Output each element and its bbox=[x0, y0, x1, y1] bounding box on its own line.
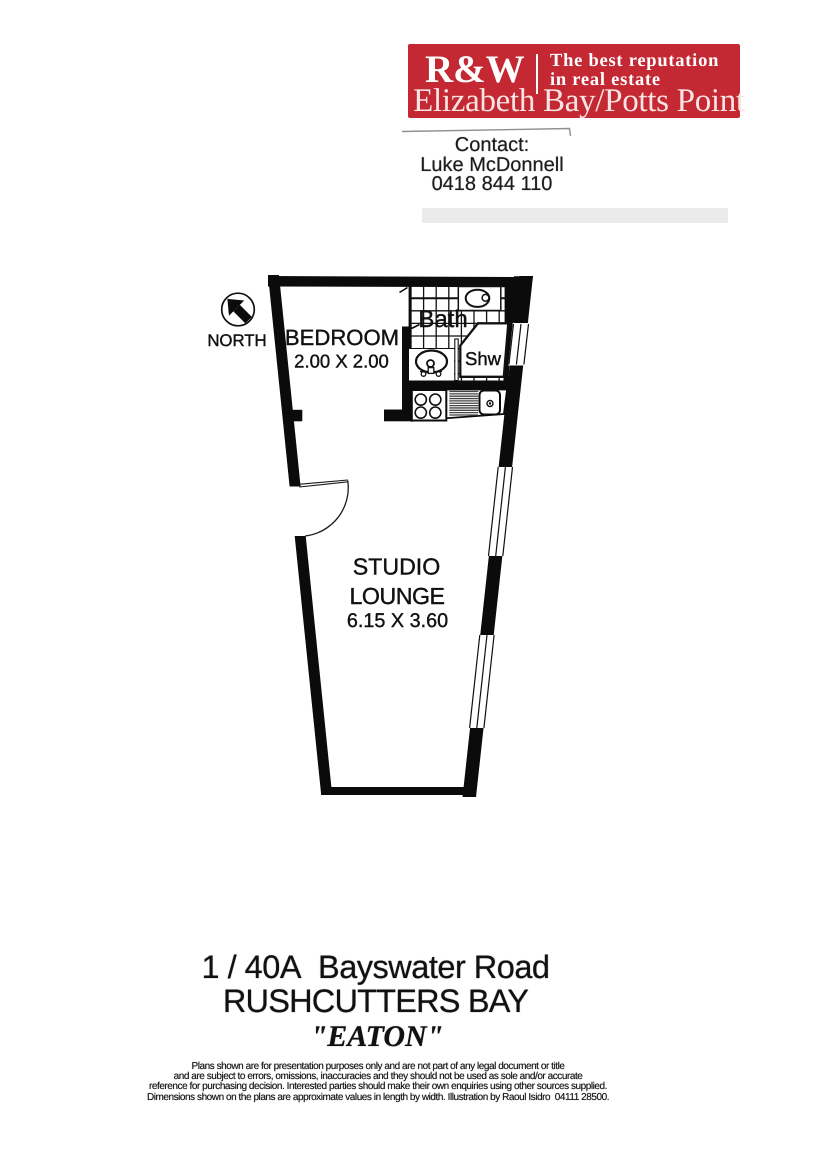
svg-text:STUDIO: STUDIO bbox=[353, 554, 441, 580]
svg-text:Shw: Shw bbox=[465, 348, 502, 369]
svg-text:Bath: Bath bbox=[418, 306, 467, 333]
svg-text:NORTH: NORTH bbox=[207, 331, 266, 350]
svg-text:BEDROOM: BEDROOM bbox=[285, 325, 399, 350]
svg-text:2.00 X 2.00: 2.00 X 2.00 bbox=[294, 351, 389, 372]
svg-text:6.15 X 3.60: 6.15 X 3.60 bbox=[347, 610, 448, 632]
svg-text:LOUNGE: LOUNGE bbox=[350, 583, 445, 609]
